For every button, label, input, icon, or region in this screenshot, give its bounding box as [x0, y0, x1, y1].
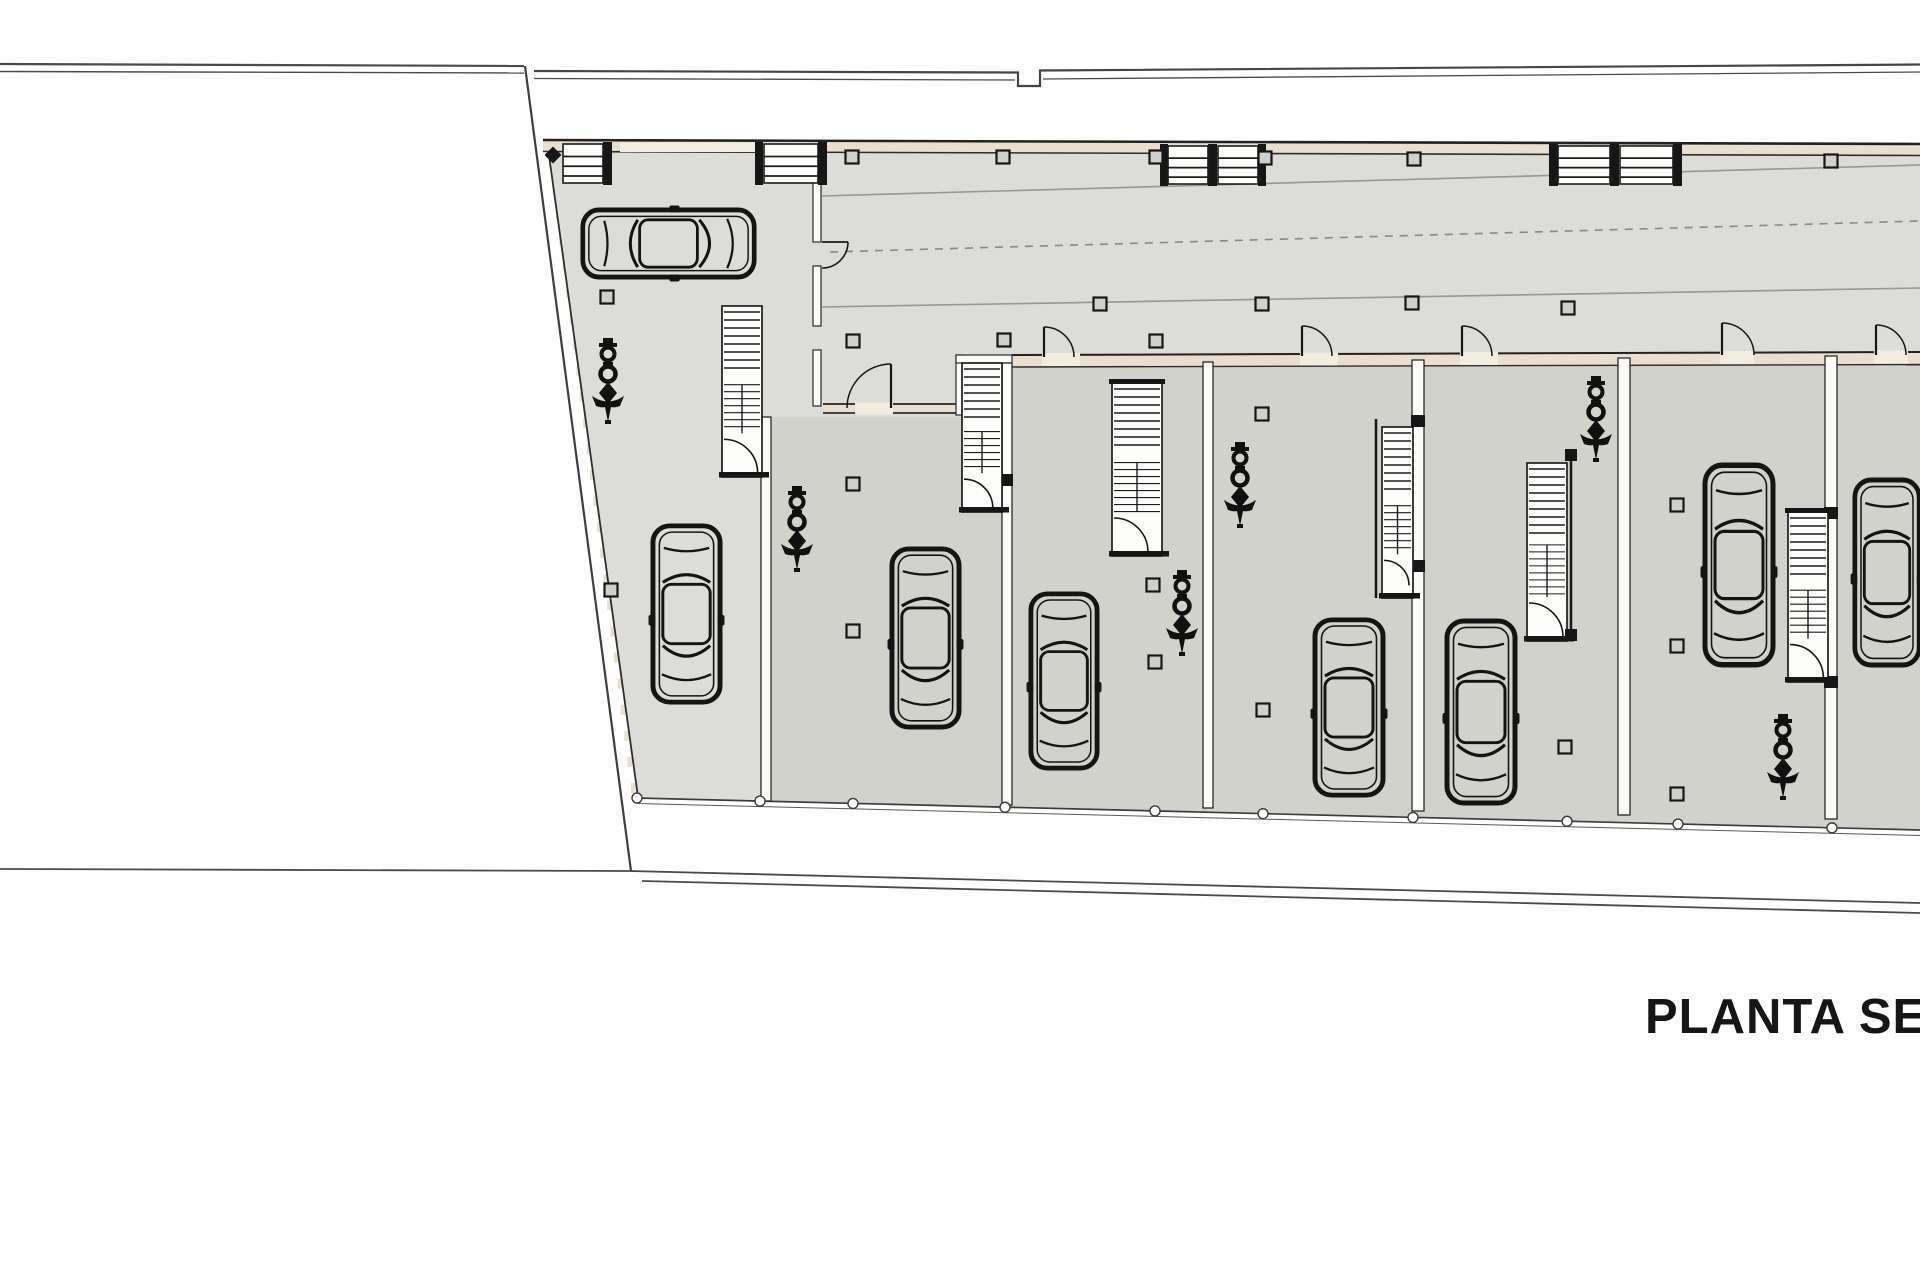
unit2-door-gap	[855, 403, 893, 415]
column	[998, 334, 1011, 347]
unit6-door-gap	[1720, 351, 1754, 364]
ladder-grille	[1218, 146, 1258, 184]
south-edge-post	[1827, 823, 1837, 833]
column	[1150, 335, 1163, 348]
north-wall-garage-gap	[620, 143, 757, 153]
edge-dash	[631, 783, 636, 793]
south-edge-post	[848, 798, 858, 808]
column	[1094, 298, 1107, 311]
boundary-top-right-outer	[534, 65, 1920, 87]
stair-threshold-bar	[1379, 593, 1420, 599]
column	[1408, 153, 1421, 166]
unit-divider-wall	[1002, 363, 1012, 805]
ladder-post	[818, 142, 827, 185]
column	[1825, 155, 1838, 168]
ladder-post	[1673, 144, 1682, 186]
column	[605, 584, 618, 597]
ladder-grille	[764, 144, 818, 183]
boundary-bottom-right-inner	[642, 881, 1920, 913]
south-edge-post	[1408, 812, 1418, 822]
boundary-top-right-inner-a	[534, 79, 1015, 81]
staircase	[1109, 379, 1169, 557]
ladder-post	[755, 142, 763, 185]
stair-threshold-bar	[719, 472, 769, 478]
stair-top-bar	[1785, 508, 1831, 513]
ladder-post	[1549, 144, 1558, 186]
ladder-grille	[1620, 146, 1673, 184]
column	[1149, 656, 1162, 669]
plan-title: PLANTA SEMIS	[1645, 989, 1920, 1045]
column	[1259, 152, 1272, 165]
ladder-grille	[1168, 146, 1208, 184]
staircase	[719, 306, 769, 478]
stair-threshold-bar	[1109, 551, 1169, 557]
boundary-top-right-inner-b	[1043, 72, 1920, 79]
edge-dash	[628, 757, 633, 767]
column	[1671, 640, 1684, 653]
divider-anchor-block	[1411, 415, 1425, 427]
south-edge-post	[1673, 819, 1683, 829]
boundary-top-left-outer	[0, 64, 524, 66]
stair-threshold-bar	[1785, 677, 1835, 683]
column	[1562, 302, 1575, 315]
column	[1147, 579, 1160, 592]
stair-threshold-bar	[959, 507, 1009, 513]
staircase	[1376, 419, 1420, 599]
stair-rail-block	[1565, 629, 1577, 641]
column	[997, 151, 1010, 164]
column	[1671, 499, 1684, 512]
column	[1150, 151, 1163, 164]
column	[847, 335, 860, 348]
column	[1257, 704, 1270, 717]
column	[1559, 741, 1572, 754]
column	[1256, 298, 1269, 311]
floor-plan-drawing	[0, 0, 1920, 1280]
unit-divider-wall	[1203, 362, 1213, 808]
stair-top-bar	[1109, 379, 1165, 384]
ladder-grille	[563, 144, 603, 183]
south-edge-post	[1562, 816, 1572, 826]
ladder-post	[603, 142, 612, 185]
column	[601, 291, 614, 304]
staircase	[1785, 508, 1835, 683]
interior-wall-stub	[813, 266, 821, 326]
interior-wall-stub	[813, 350, 821, 406]
south-edge-post	[755, 796, 765, 806]
column	[1256, 408, 1269, 421]
interior-wall-stub	[956, 355, 1012, 363]
staircase	[959, 363, 1009, 513]
boundary-top-left-inner	[0, 72, 524, 74]
column	[1671, 788, 1684, 801]
edge-dash	[624, 731, 629, 741]
boundary-bottom-left	[0, 869, 629, 871]
south-edge-post	[1150, 806, 1160, 816]
column	[846, 151, 859, 164]
south-edge-post	[632, 793, 642, 803]
south-edge-post	[1000, 802, 1010, 812]
stair-rail-block	[1565, 449, 1577, 461]
column	[847, 478, 860, 491]
column	[847, 625, 860, 638]
ladder-post	[1208, 144, 1217, 186]
south-edge-post	[1258, 809, 1268, 819]
unit-divider-wall	[1618, 358, 1630, 815]
column	[1406, 297, 1419, 310]
boundary-bottom-right-outer	[629, 871, 1920, 903]
ladder-grille	[1558, 146, 1610, 184]
ladder-post	[1610, 144, 1619, 186]
garage-units-floor	[772, 356, 1920, 829]
unit7-door-gap	[1874, 351, 1908, 364]
floor-plan-page: PLANTA SEMIS	[0, 0, 1920, 1280]
